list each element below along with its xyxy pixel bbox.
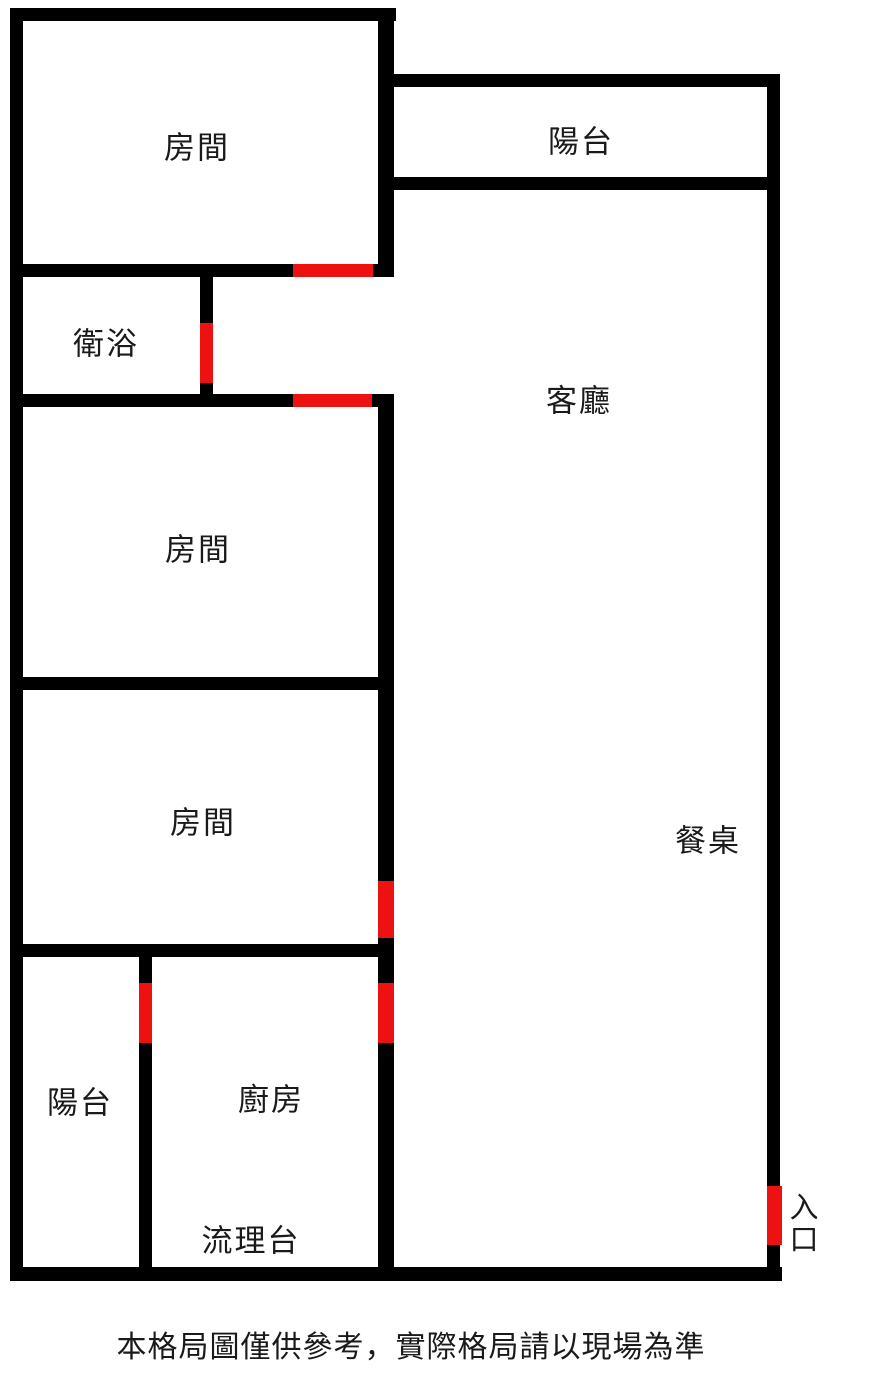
room-label-entrance: 入口 — [786, 1192, 817, 1256]
room-label-balcony-top: 陽台 — [548, 117, 614, 162]
wall-outer-top — [10, 8, 396, 21]
room-label-kitchen: 廚房 — [238, 1075, 304, 1120]
floor-plan-canvas: 房間 陽台 衛浴 客廳 房間 房間 餐桌 陽台 廚房 流理台 入口 本格局圖僅供… — [0, 0, 889, 1373]
door-bedroom-middle — [293, 394, 372, 407]
room-label-living-room: 客廳 — [546, 376, 612, 421]
wall-bedroom-lower-bottom — [10, 944, 394, 957]
disclaimer-text: 本格局圖僅供參考，實際格局請以現場為準 — [0, 1322, 822, 1366]
room-label-bathroom: 衛浴 — [73, 319, 139, 364]
door-bedroom-lower — [378, 881, 394, 938]
room-label-balcony-bottom: 陽台 — [47, 1078, 113, 1123]
door-balcony-bottom — [139, 983, 152, 1043]
door-bedroom-top — [293, 264, 373, 277]
wall-outer-left — [10, 8, 23, 1281]
wall-balcony-top-upper — [391, 74, 780, 87]
door-kitchen — [378, 983, 394, 1043]
room-label-counter: 流理台 — [202, 1216, 301, 1261]
room-label-bedroom-middle: 房間 — [165, 525, 231, 570]
wall-outer-right — [767, 74, 780, 1281]
wall-balcony-top-lower — [391, 177, 780, 190]
room-label-dining-table: 餐桌 — [675, 816, 741, 861]
door-bathroom — [200, 323, 213, 383]
wall-bedroom-middle-bottom — [10, 677, 394, 690]
wall-central-spine — [378, 394, 394, 1281]
room-label-bedroom-top: 房間 — [164, 123, 230, 168]
room-label-bedroom-lower: 房間 — [170, 798, 236, 843]
wall-outer-bottom — [10, 1267, 782, 1281]
wall-bedroom-top-right — [378, 8, 394, 277]
door-entrance — [767, 1186, 782, 1245]
